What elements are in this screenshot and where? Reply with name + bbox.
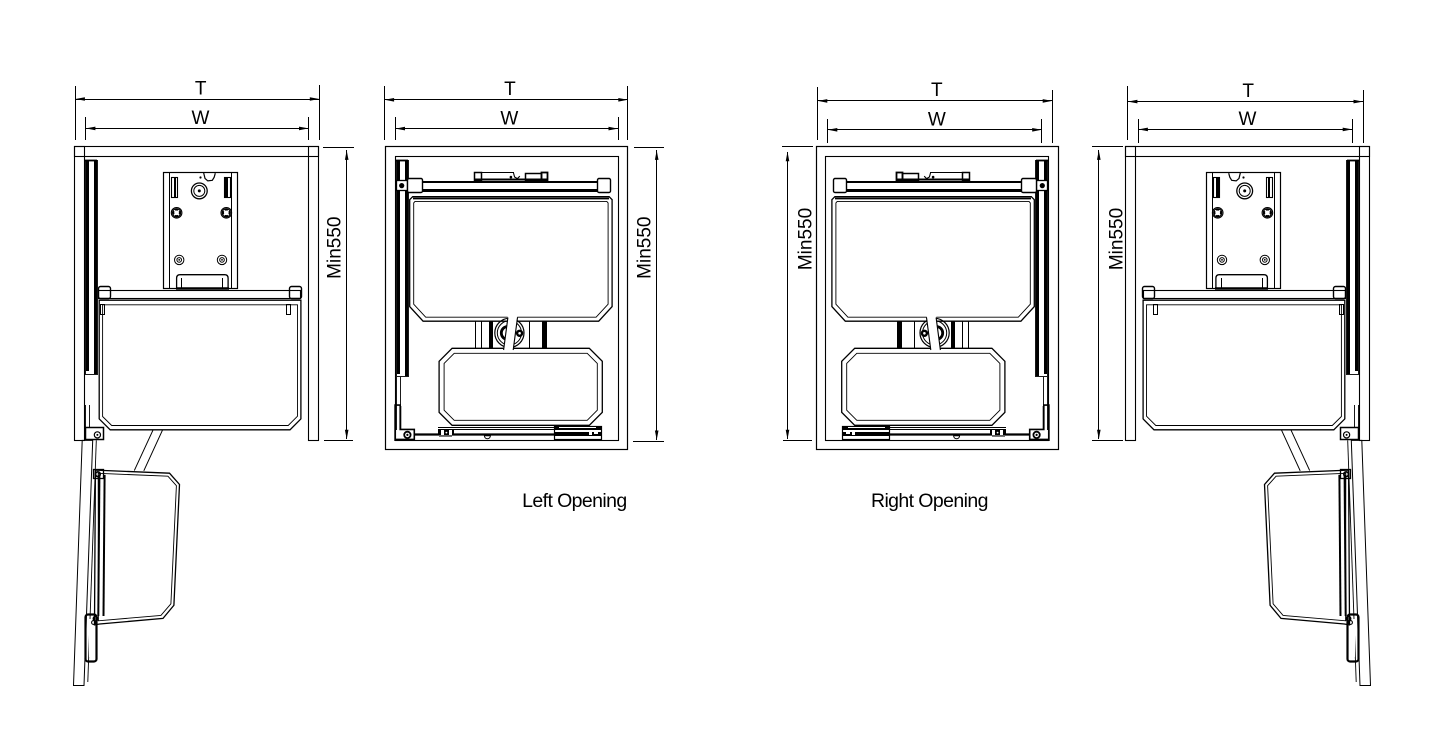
svg-text:T: T [504,79,516,100]
svg-text:W: W [192,108,210,129]
svg-text:Min550: Min550 [635,217,656,279]
svg-text:Min550: Min550 [795,208,816,270]
svg-text:T: T [931,80,943,101]
svg-text:Min550: Min550 [325,217,346,279]
svg-text:T: T [1242,81,1254,102]
svg-text:Min550: Min550 [1107,208,1128,270]
svg-text:Right Opening: Right Opening [871,490,988,512]
svg-text:Left Opening: Left Opening [522,490,626,512]
svg-text:W: W [500,108,518,129]
svg-text:W: W [1239,109,1257,130]
svg-text:W: W [928,109,946,130]
svg-text:T: T [195,78,207,99]
